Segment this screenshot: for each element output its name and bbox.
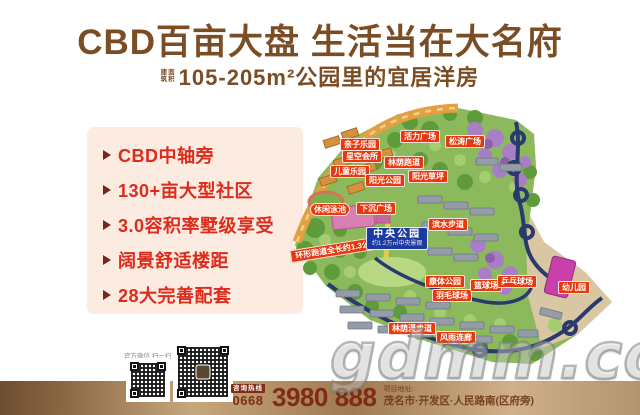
feature-item: 28大完善配套 — [103, 277, 303, 312]
feature-label: 阔景舒适楼距 — [118, 247, 229, 273]
subtitle-prefix: 建筑 面积 — [161, 69, 176, 83]
map-tag: 林荫漫步道 — [388, 322, 436, 335]
map-tag: 下沉广场 — [356, 202, 396, 215]
central-park-title: 中央公园 — [372, 229, 422, 241]
page-subtitle: 105-205m²公园里的宜居洋房 — [179, 60, 480, 92]
qr-finder-icon — [177, 346, 186, 355]
address-text: 茂名市·开发区·人民路南(区府旁) — [383, 394, 534, 408]
feature-item: 130+亩大型社区 — [103, 172, 303, 207]
feature-label: CBD中轴旁 — [118, 142, 214, 168]
triangle-bullet-icon — [103, 185, 111, 195]
feature-label: 28大完善配套 — [118, 282, 232, 308]
triangle-bullet-icon — [103, 150, 111, 160]
map-tag: 星空会所 — [342, 150, 382, 163]
feature-label: 3.0容积率墅级享受 — [118, 212, 274, 238]
central-park-subtitle: 约1.2万㎡中央景观 — [372, 241, 422, 248]
ad-poster: CBD百亩大盘 生活当在大名府 建筑 面积 105-205m²公园里的宜居洋房 … — [0, 0, 640, 415]
qr-code-wechat — [130, 362, 166, 398]
map-tag: 阳光公园 — [365, 174, 405, 187]
map-tag: 活力广场 — [400, 130, 440, 143]
map-tag: 风雨连廊 — [436, 331, 476, 344]
qr-code-project — [177, 346, 229, 398]
central-park-label: 中央公园 约1.2万㎡中央景观 — [366, 227, 428, 250]
qr-finder-icon — [177, 389, 186, 398]
hotline-badge: 咨询热线 — [231, 384, 265, 393]
triangle-bullet-icon — [103, 290, 111, 300]
hotline-left: 咨询热线 0668 — [231, 384, 265, 408]
address-block: 项目地址: 茂名市·开发区·人民路南(区府旁) — [383, 385, 534, 408]
triangle-bullet-icon — [103, 220, 111, 230]
qr-center-logo-icon — [196, 365, 211, 380]
qr-finder-icon — [220, 346, 229, 355]
subtitle-prefix-line2: 面积 — [168, 69, 176, 83]
map-tag: 松涛广场 — [445, 135, 485, 148]
subtitle-prefix-line1: 建筑 — [161, 69, 169, 83]
feature-item: 阔景舒适楼距 — [103, 242, 303, 277]
qr-finder-icon — [157, 362, 166, 371]
map-tag: 康体公园 — [425, 275, 465, 288]
address-label: 项目地址: — [383, 385, 534, 394]
qr-finder-icon — [130, 389, 139, 398]
qr-finder-icon — [130, 362, 139, 371]
page-title: CBD百亩大盘 生活当在大名府 — [0, 14, 640, 65]
site-map: 亲子乐园 活力广场 松涛广场 星空会所 林荫跑道 儿童乐园 阳光公园 阳光草坪 … — [280, 100, 640, 370]
feature-label: 130+亩大型社区 — [118, 177, 253, 203]
contact-block: 咨询热线 0668 3980 888 项目地址: 茂名市·开发区·人民路南(区府… — [231, 384, 534, 410]
qr-caption: 官方微信 扫一扫 — [124, 352, 171, 361]
triangle-bullet-icon — [103, 255, 111, 265]
feature-item: 3.0容积率墅级享受 — [103, 207, 303, 242]
map-tag: 林荫跑道 — [384, 156, 424, 169]
hotline-area-code: 0668 — [233, 393, 264, 408]
subtitle-row: 建筑 面积 105-205m²公园里的宜居洋房 — [0, 60, 640, 92]
map-tag: 休闲泳池 — [310, 203, 350, 216]
hotline-number: 3980 888 — [272, 384, 376, 410]
map-tag: 阳光草坪 — [408, 170, 448, 183]
feature-item: CBD中轴旁 — [103, 137, 303, 172]
map-tag: 乒乓球场 — [497, 275, 537, 288]
feature-panel: CBD中轴旁 130+亩大型社区 3.0容积率墅级享受 阔景舒适楼距 28大完善… — [87, 127, 303, 314]
map-tag: 儿童乐园 — [330, 165, 370, 178]
map-tag: 滨水步道 — [428, 218, 468, 231]
qr-column: 官方微信 扫一扫 — [124, 352, 171, 398]
map-tag: 羽毛球场 — [432, 289, 472, 302]
qr-group: 官方微信 扫一扫 — [124, 346, 229, 398]
map-tag: 幼儿园 — [558, 281, 590, 294]
